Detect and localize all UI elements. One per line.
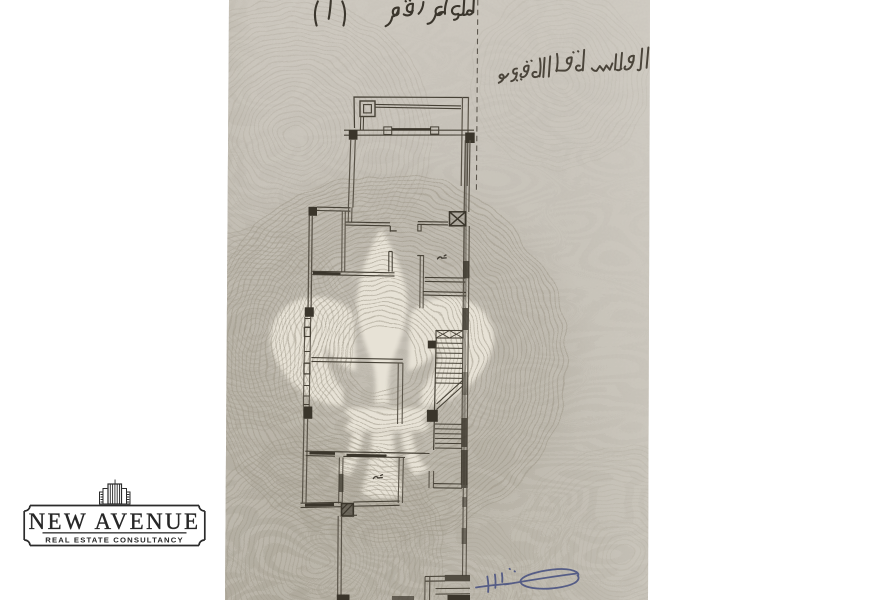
svg-text:REAL ESTATE CONSULTANCY: REAL ESTATE CONSULTANCY [45, 535, 184, 544]
svg-text:NEW AVENUE: NEW AVENUE [28, 508, 200, 533]
